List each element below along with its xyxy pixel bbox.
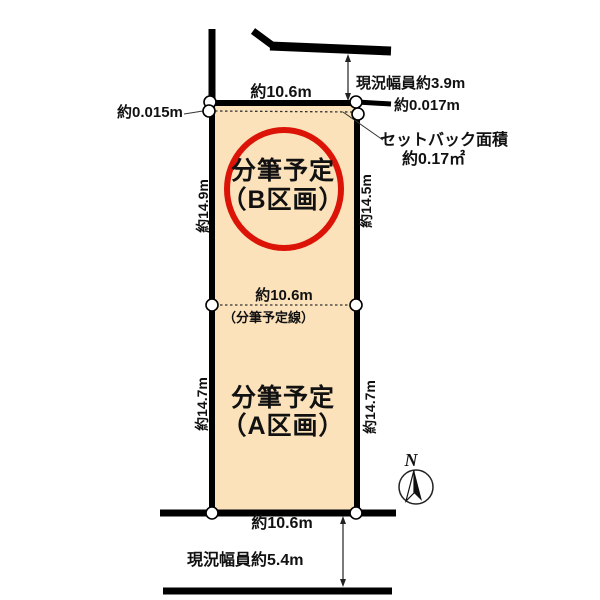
section-b-title: 分筆予定 [231,156,335,185]
compass-north-label: N [404,450,419,470]
bottom-road-arrowhead-up-icon [340,516,346,524]
section-a-subtitle: （A区画） [221,411,344,440]
dim-bottom-width: 約10.6m [251,513,312,532]
section-b-subtitle: （B区画） [221,185,344,214]
dim-b-left-side: 約14.9m [195,179,211,233]
setback-area-label-line2: 約0.17㎡ [402,149,465,168]
split-line-note: （分筆予定線） [223,310,314,325]
dim-a-right-side: 約14.7m [362,380,378,434]
dim-b-right-side: 約14.5m [358,174,374,228]
diagram-canvas: N 分筆予定 （B区画） 約10.6m 約14.9m 約14.5m 約10.6m… [0,0,600,600]
top-road-arrowhead-up-icon [345,54,351,62]
vertex-marker-top-right-outer [350,96,362,108]
vertex-marker-split-right [350,299,362,311]
dim-a-left-side: 約14.7m [194,377,210,431]
vertex-marker-bottom-left [206,507,218,519]
vertex-marker-split-left [206,299,218,311]
setback-area-label-line1: セットバック面積 [380,130,509,149]
setback-offset-left-label: 約0.015m [117,103,183,121]
vertex-marker-top-right-inner [352,108,364,120]
land-plot-diagram: N 分筆予定 （B区画） 約10.6m 約14.9m 約14.5m 約10.6m… [0,0,600,600]
bottom-road-width-label: 現況幅員約5.4m [187,550,303,569]
offset-left-leader-line [184,111,203,114]
section-a-title: 分筆予定 [231,383,335,412]
bottom-road-arrowhead-down-icon [340,579,346,587]
road-edge-top-main [270,46,391,51]
compass-needle-light-icon [406,470,414,501]
road-edge-top-angled [253,31,272,45]
setback-offset-right-label: 約0.017m [394,96,460,114]
vertex-marker-bottom-right [350,507,362,519]
dim-split-width: 約10.6m [255,286,313,304]
compass-needle-dark-icon [414,470,422,501]
vertex-marker-top-left-inner [203,105,215,117]
top-road-width-label: 現況幅員約3.9m [356,74,465,92]
dim-top-width: 約10.6m [250,82,311,101]
